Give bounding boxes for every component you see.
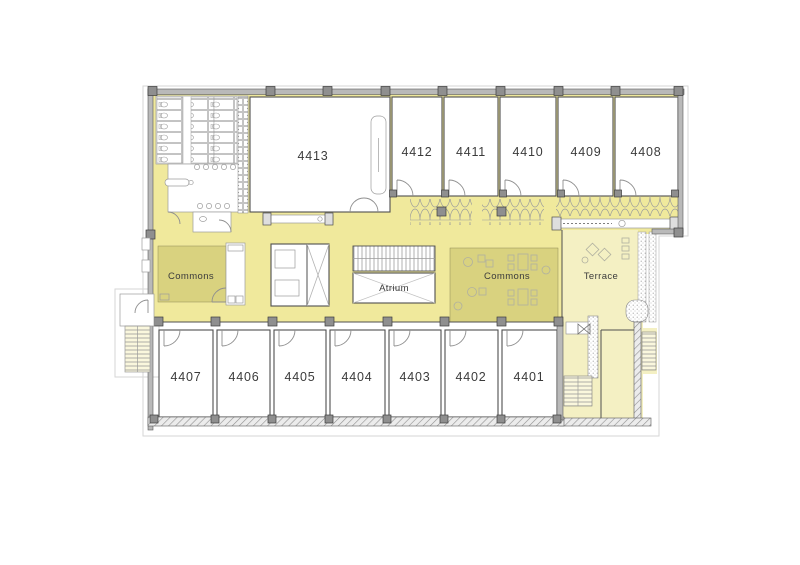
wall-4401-east	[557, 322, 563, 420]
stair-landing	[120, 294, 154, 326]
room-4412: 4412	[392, 97, 442, 196]
commons-left: Commons	[158, 243, 245, 305]
room-label-4401: 4401	[513, 370, 544, 384]
wall-east-upper	[678, 89, 683, 234]
locker-strip	[238, 97, 248, 213]
corridor-bench	[263, 213, 333, 225]
sliding-wall-track	[552, 217, 679, 230]
commons-right-label: Commons	[484, 271, 530, 282]
wall-recess	[142, 260, 150, 272]
room-label-4409: 4409	[570, 145, 601, 159]
floor-plan-drawing: 4413 4412 4411 4410 4409 4408	[0, 0, 800, 565]
room-4406: 4406	[217, 330, 270, 417]
room-4405: 4405	[274, 330, 326, 417]
room-label-4411: 4411	[456, 145, 486, 159]
stair-zone-wall-east	[634, 322, 641, 420]
atrium-label: Atrium	[379, 283, 409, 294]
atrium: Atrium	[353, 246, 435, 303]
room-label-4412: 4412	[401, 145, 432, 159]
stall-row-left	[157, 97, 183, 163]
commons-left-label: Commons	[168, 271, 214, 282]
drinking-fountain	[165, 179, 189, 186]
room-label-4404: 4404	[341, 370, 372, 384]
exterior-stair-east	[642, 332, 656, 370]
room-label-4406: 4406	[228, 370, 259, 384]
room-label-4408: 4408	[630, 145, 661, 159]
room-4407: 4407	[159, 330, 213, 417]
wall-north	[148, 89, 684, 95]
room-4401: 4401	[502, 330, 557, 417]
restroom-block	[156, 96, 248, 232]
room-4409: 4409	[558, 97, 613, 196]
room-label-4403: 4403	[399, 370, 430, 384]
restroom-sink-zone	[168, 164, 248, 212]
room-4404: 4404	[330, 330, 385, 417]
gravel-pad	[626, 300, 648, 322]
folding-partition-mid	[482, 199, 544, 225]
wall-west	[148, 89, 153, 430]
corridor-column	[437, 207, 446, 216]
room-label-4410: 4410	[512, 145, 543, 159]
room-label-4413: 4413	[297, 149, 328, 163]
planting-strip-outer	[649, 232, 656, 322]
corridor-column	[497, 207, 506, 216]
room-4402: 4402	[445, 330, 498, 417]
stall-row-mid-a	[191, 97, 214, 163]
terrace-label: Terrace	[584, 271, 618, 282]
room-4411: 4411	[444, 97, 498, 196]
room-label-4402: 4402	[455, 370, 486, 384]
stall-row-mid-b	[214, 97, 237, 163]
room-label-4405: 4405	[284, 370, 315, 384]
elevator-shaft-block	[271, 244, 329, 306]
room-4410: 4410	[500, 97, 556, 196]
elevator-core	[271, 244, 329, 306]
stair-zone-wall-south	[560, 418, 651, 426]
wall-recess	[142, 238, 150, 250]
floor-plan-page: 4413 4412 4411 4410 4409 4408	[0, 0, 800, 565]
room-label-4407: 4407	[170, 370, 201, 384]
room-4408: 4408	[615, 97, 678, 196]
commons-right: Commons	[450, 248, 558, 322]
dotted-wall-strip	[588, 316, 598, 378]
room-4413: 4413	[250, 97, 390, 212]
folding-partition-east	[556, 196, 678, 216]
room-4403: 4403	[389, 330, 441, 417]
